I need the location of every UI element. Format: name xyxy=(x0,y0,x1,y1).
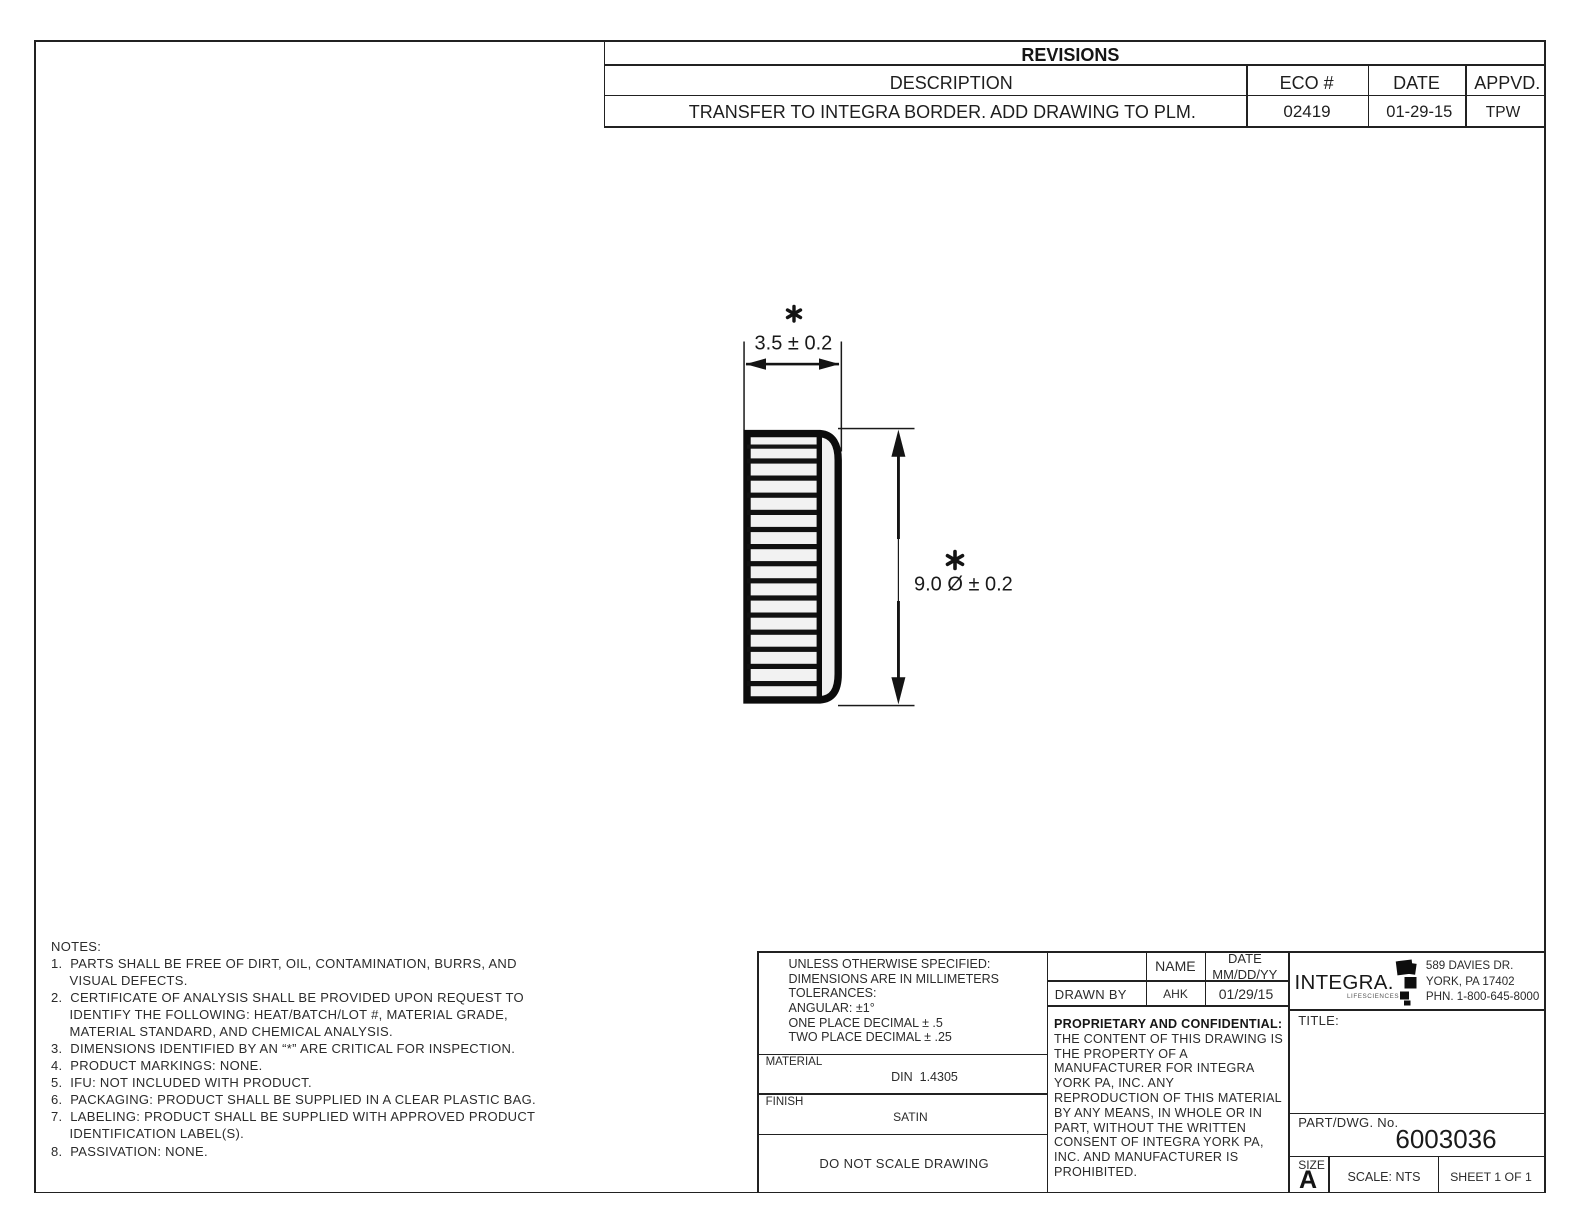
svg-text:3.5 ± 0.2: 3.5 ± 0.2 xyxy=(755,333,833,355)
svg-text:9.0 Ø ± 0.2: 9.0 Ø ± 0.2 xyxy=(914,573,1013,595)
